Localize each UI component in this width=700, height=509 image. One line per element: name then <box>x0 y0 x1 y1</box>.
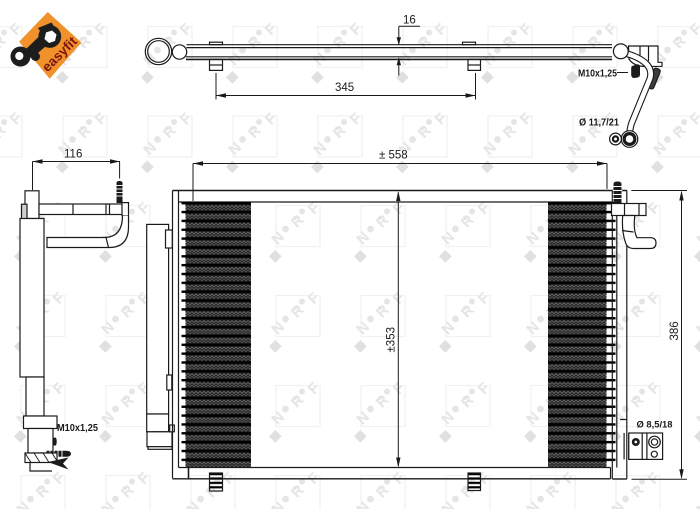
svg-text:M10x1,25: M10x1,25 <box>578 69 617 80</box>
svg-text:M10x1,25: M10x1,25 <box>57 423 98 434</box>
svg-text:± 558: ± 558 <box>379 150 408 162</box>
svg-text:386: 386 <box>669 321 681 340</box>
svg-text:345: 345 <box>335 82 354 94</box>
svg-text:Ø 11,7/21: Ø 11,7/21 <box>579 117 619 129</box>
svg-text:±353: ±353 <box>386 327 398 353</box>
svg-text:Ø 8,5/18: Ø 8,5/18 <box>637 419 673 430</box>
svg-text:116: 116 <box>64 149 82 161</box>
svg-text:16: 16 <box>403 15 416 27</box>
